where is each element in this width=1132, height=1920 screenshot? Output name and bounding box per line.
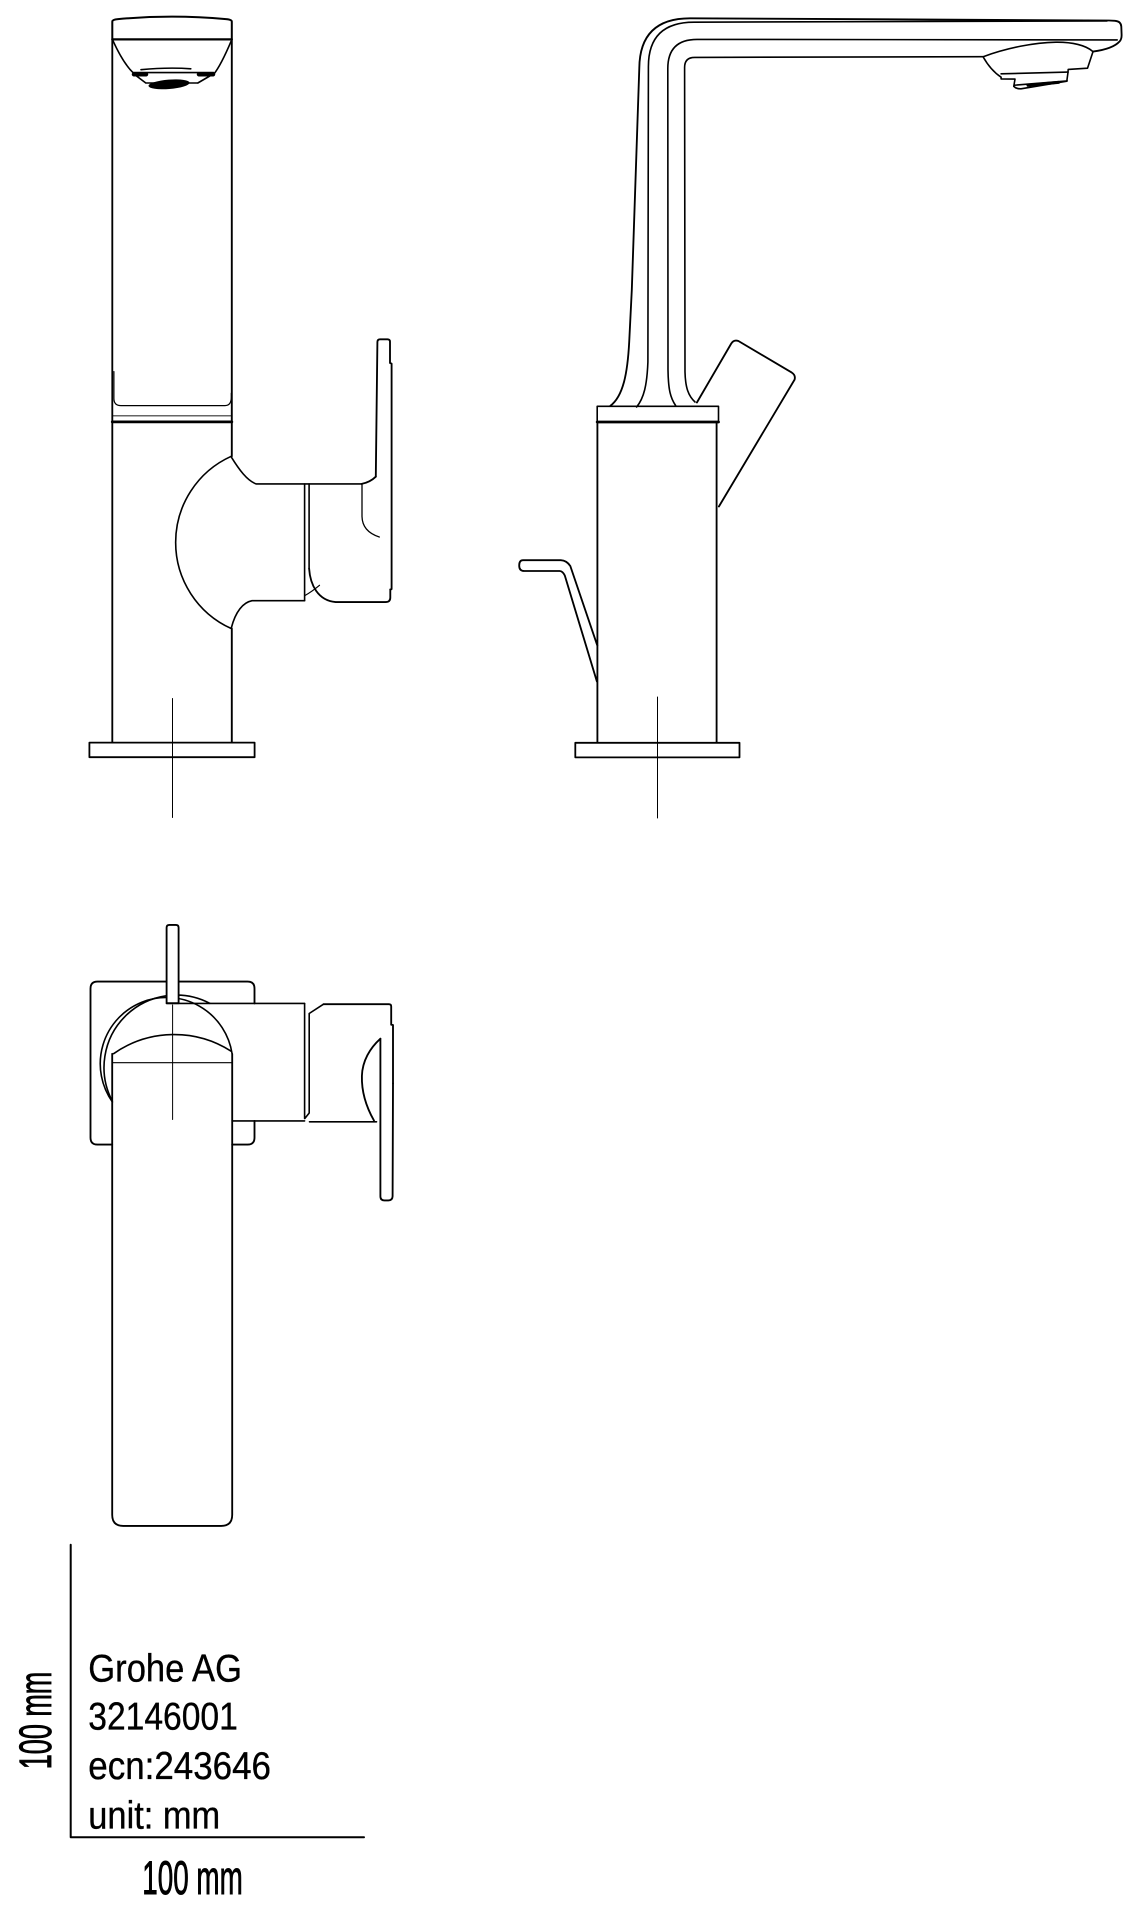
svg-text:32146001: 32146001 <box>88 1695 237 1739</box>
svg-text:unit: mm: unit: mm <box>88 1794 220 1837</box>
svg-text:ecn:243646: ecn:243646 <box>88 1745 271 1788</box>
svg-text:Grohe AG: Grohe AG <box>88 1647 242 1690</box>
svg-text:100 mm: 100 mm <box>10 1672 61 1769</box>
svg-text:100 mm: 100 mm <box>142 1853 242 1905</box>
